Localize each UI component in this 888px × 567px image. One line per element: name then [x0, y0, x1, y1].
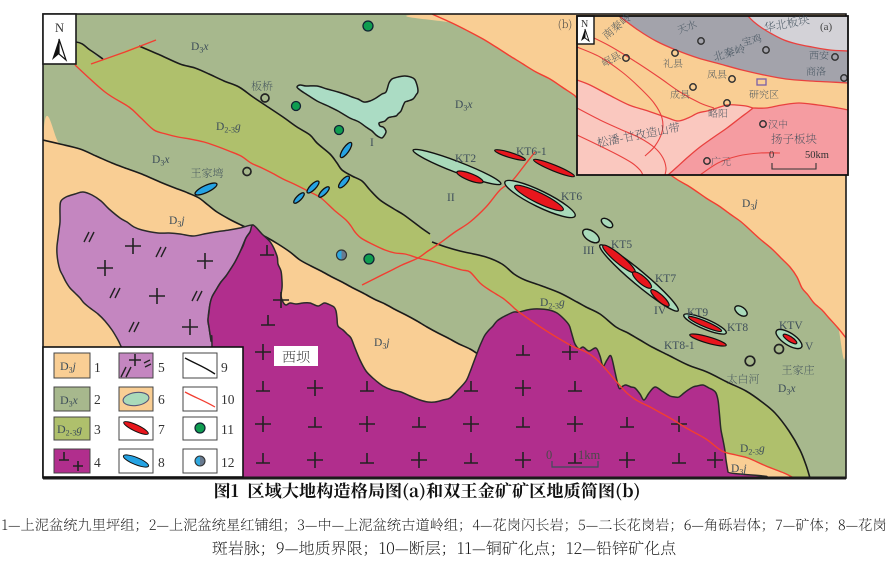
svg-text:50km: 50km [805, 150, 829, 161]
svg-text:III: III [583, 245, 595, 257]
svg-text:4: 4 [94, 455, 101, 470]
svg-text:3: 3 [94, 422, 101, 437]
svg-text:1km: 1km [578, 448, 601, 462]
svg-text:KT6-1: KT6-1 [516, 146, 547, 158]
svg-text:D3j: D3j [169, 215, 185, 229]
svg-text:D3j: D3j [374, 337, 390, 351]
svg-text:11: 11 [221, 422, 234, 437]
svg-text:D3j: D3j [731, 463, 747, 477]
svg-text:KT2: KT2 [455, 153, 476, 165]
svg-text:9: 9 [221, 360, 228, 375]
svg-text:V: V [805, 341, 814, 353]
svg-text:KT8: KT8 [727, 322, 748, 334]
svg-text:N: N [581, 19, 588, 30]
svg-text:KT6: KT6 [561, 191, 582, 203]
svg-text:II: II [447, 192, 455, 204]
svg-text:0: 0 [769, 150, 774, 161]
svg-text:(a): (a) [820, 21, 833, 33]
svg-text:12: 12 [221, 455, 235, 470]
svg-text:5: 5 [158, 360, 165, 375]
svg-text:2: 2 [94, 392, 101, 407]
svg-text:7: 7 [158, 422, 165, 437]
svg-text:KT5: KT5 [611, 239, 632, 251]
svg-text:KT8-1: KT8-1 [664, 340, 695, 352]
svg-text:KTV: KTV [779, 320, 803, 332]
svg-text:KT7: KT7 [655, 273, 676, 285]
svg-text:6: 6 [158, 392, 165, 407]
svg-text:1: 1 [94, 360, 101, 375]
svg-text:10: 10 [221, 392, 235, 407]
svg-text:IV: IV [654, 305, 667, 317]
svg-text:0: 0 [546, 448, 552, 462]
svg-text:I: I [370, 137, 374, 149]
svg-text:D3j: D3j [742, 198, 758, 212]
svg-text:D3j: D3j [60, 359, 76, 375]
svg-text:8: 8 [158, 455, 165, 470]
svg-text:N: N [55, 21, 64, 35]
svg-text:KT9: KT9 [687, 307, 708, 319]
